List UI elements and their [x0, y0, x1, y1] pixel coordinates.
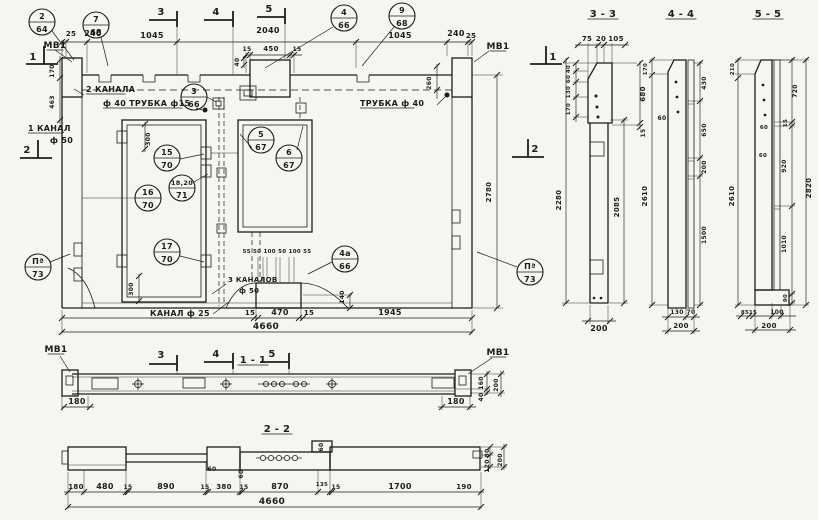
- callout-7-68: 768: [83, 12, 109, 38]
- dim-180-s1-right: 180: [447, 397, 465, 406]
- dim-480-s2: 480: [96, 482, 114, 491]
- title-section-1-1: 1 - 1: [240, 355, 267, 366]
- section-mark-label: 4: [212, 7, 219, 18]
- section-mark-label: 3: [157, 350, 164, 361]
- dim-870-s2: 870: [271, 482, 289, 491]
- dim-180-s1-left: 180: [68, 397, 86, 406]
- dim-170-s4: 170: [643, 63, 649, 75]
- callout-4а-66: 4а66: [332, 246, 358, 272]
- dim-1045-left: 1045: [140, 31, 164, 40]
- dim-920-s5: 920: [781, 159, 788, 172]
- dim-2820-s5: 2820: [805, 178, 813, 199]
- callout-top-number: 7: [93, 15, 99, 24]
- label-3-kanalov: 3 КАНАЛОВ: [228, 276, 278, 284]
- dim-canal-row: 55 50 100 50 100 55: [243, 249, 312, 255]
- dim-60-s2c: 60: [318, 443, 325, 452]
- extension-lines: [62, 40, 809, 509]
- dim-430-s4: 430: [701, 76, 708, 89]
- callout-5-67: 567: [248, 127, 274, 153]
- callout-top-number: 18,20: [171, 179, 193, 187]
- section-mark-label: 2: [23, 145, 30, 156]
- callout-top-number: 9: [399, 6, 405, 15]
- callout-16-70: 1670: [135, 185, 161, 211]
- dim-190-s2: 190: [456, 483, 472, 491]
- sill-bolts-s2: [256, 455, 302, 460]
- dim-40-rot: 40: [234, 58, 241, 67]
- label-mv1-top-right: МВ1: [487, 42, 510, 52]
- dim-15-s3: 15: [640, 129, 647, 138]
- dim-200-s1: 200: [493, 378, 500, 391]
- section-4-4-view: [668, 60, 694, 308]
- section-mark-label: 1: [29, 52, 36, 63]
- dim-75-s3: 75: [582, 35, 592, 43]
- dim-2085-s3: 2085: [613, 197, 621, 218]
- dim-650-s4: 650: [701, 123, 708, 136]
- callout-top-number: 5: [258, 130, 264, 139]
- callout-3-66: 366: [181, 84, 207, 110]
- dim-130-s4: 130: [670, 309, 683, 316]
- section-mark-label: 5: [265, 4, 272, 15]
- dim-120-s2: 120: [484, 459, 491, 472]
- dim-450-sub: 450: [263, 45, 279, 53]
- dim-240-right: 240: [447, 29, 465, 38]
- label-truba-40-15: ф 40 ТРУБКА ф15: [103, 99, 190, 108]
- dim-60-s5b: 60: [759, 153, 767, 159]
- callout-top-number: 4: [341, 8, 347, 17]
- dim-15-sub-l: 15: [243, 46, 252, 53]
- dim-105-s3: 105: [608, 35, 624, 43]
- dim-170-left: 170: [49, 64, 56, 77]
- dim-1045-right: 1045: [388, 31, 412, 40]
- title-section-5-5: 5 - 5: [755, 9, 782, 20]
- callout-Пª-73: Пª73: [517, 259, 543, 285]
- dim-300-bottom: 300: [128, 282, 135, 295]
- callout-bottom-number: 67: [283, 161, 295, 170]
- title-section-2-2: 2 - 2: [264, 424, 291, 435]
- label-f-50-bottom: ф 50: [239, 287, 259, 295]
- dim-890-s2: 890: [157, 482, 175, 491]
- dim-200-s5: 200: [761, 322, 777, 330]
- dim-15-s2d: 15: [332, 484, 341, 491]
- dim-200-s3: 200: [590, 324, 608, 333]
- callout-top-number: Пª: [32, 257, 44, 266]
- bottom-canal-block: [256, 283, 301, 308]
- callout-bottom-number: 70: [161, 255, 173, 264]
- trubka-15-marker: [203, 108, 208, 113]
- callout-2-64: 264: [29, 9, 55, 35]
- dim-1500-s4: 1500: [701, 226, 708, 244]
- label-kanal-25: КАНАЛ ф 25: [150, 309, 210, 318]
- section-5-5-view: [755, 60, 789, 305]
- dim-130-s3: 130: [566, 86, 572, 98]
- section-mark-3: 3: [149, 350, 177, 374]
- callout-bottom-number: 73: [524, 275, 536, 284]
- dim-720-s5: 720: [792, 84, 799, 97]
- dim-60-s2a: 60: [208, 466, 217, 473]
- section-mark-1: 1: [530, 46, 562, 64]
- callout-top-number: 17: [161, 242, 173, 251]
- dim-300-top: 300: [145, 132, 152, 145]
- dim-200-s2: 200: [497, 453, 504, 466]
- callout-bottom-number: 68: [90, 28, 102, 37]
- callout-top-number: 6: [286, 148, 292, 157]
- dim-463-left: 463: [49, 95, 56, 108]
- dim-470: 470: [271, 308, 289, 317]
- callout-bottom-number: 71: [176, 191, 188, 200]
- callout-top-number: 4а: [339, 249, 351, 258]
- callout-18,20-71: 18,2071: [169, 175, 195, 201]
- dim-260: 260: [426, 76, 433, 89]
- label-mv1-s1-right: МВ1: [487, 348, 510, 358]
- callout-17-70: 1770: [154, 239, 180, 265]
- dim-15-s5: 15: [783, 119, 789, 127]
- callout-bottom-number: 67: [255, 143, 267, 152]
- callout-bottom-number: 64: [36, 25, 48, 34]
- callout-bottom-number: 66: [188, 100, 200, 109]
- drawing-sheet: МВ12524010452040154501540104524025МВ1170…: [0, 0, 818, 520]
- dim-680-s3: 680: [639, 86, 647, 102]
- callout-15-70: 1570: [154, 145, 180, 171]
- dim-4660-s2: 4660: [259, 497, 285, 507]
- callout-top-number: 16: [142, 188, 154, 197]
- dim-15-sub-r: 15: [293, 46, 302, 53]
- section-mark-label: 5: [268, 349, 275, 360]
- section-mark-4: 4: [204, 7, 233, 74]
- dim-15-bot-l: 15: [245, 309, 255, 317]
- dim-4660-main: 4660: [253, 322, 279, 332]
- section-mark-3: 3: [149, 7, 177, 74]
- dim-170-s3: 170: [566, 103, 572, 115]
- label-f-50: ф 50: [50, 136, 73, 145]
- dim-135-s2: 135: [316, 482, 328, 488]
- section-mark-label: 3: [157, 7, 164, 18]
- dim-160-s1: 160: [478, 376, 485, 389]
- dim-2280-s3: 2280: [555, 190, 563, 211]
- section-mark-5: 5: [260, 349, 289, 374]
- leader-lines: [50, 27, 517, 374]
- callout-bottom-number: 66: [338, 21, 350, 30]
- callout-9-68: 968: [389, 3, 415, 29]
- dim-40-s3: 40: [566, 65, 572, 73]
- dim-20-s3: 20: [596, 35, 606, 43]
- dim-2610-s5: 2610: [728, 186, 736, 207]
- callout-4-66: 466: [331, 5, 357, 31]
- dim-60-s5a: 60: [760, 125, 768, 131]
- label-mv1-s1-left: МВ1: [45, 345, 68, 355]
- dim-200-s4a: 200: [701, 160, 708, 173]
- callout-6-67: 667: [276, 145, 302, 171]
- dim-60-s3: 60: [566, 75, 572, 83]
- dim-140: 140: [339, 290, 346, 303]
- dim-2780: 2780: [485, 182, 493, 203]
- section-mark-label: 2: [531, 144, 538, 155]
- callout-bottom-number: 66: [339, 262, 351, 271]
- callout-bottom-number: 68: [396, 19, 408, 28]
- callout-bottom-number: 70: [142, 201, 154, 210]
- dim-380-s2: 380: [216, 483, 232, 491]
- trubka-40-marker: [445, 93, 450, 98]
- label-1-kanal: 1 КАНАЛ: [28, 124, 71, 133]
- callout-top-number: 15: [161, 148, 173, 157]
- dim-210-s5: 210: [730, 63, 736, 75]
- callout-Пª-73: Пª73: [25, 254, 51, 280]
- section-1-1-view: [62, 370, 471, 396]
- title-section-3-3: 3 - 3: [590, 9, 617, 20]
- section-mark-2: 2: [512, 139, 544, 157]
- callout-top-number: Пª: [524, 262, 536, 271]
- section-mark-2: 2: [20, 140, 52, 158]
- dim-2610-s4: 2610: [641, 186, 649, 207]
- section-2-2-view: [62, 441, 482, 470]
- section-3-3-view: [588, 63, 612, 303]
- dim-1945: 1945: [378, 308, 402, 317]
- dim-40-s1: 40: [478, 393, 485, 402]
- callout-top-number: 2: [39, 12, 45, 21]
- section-mark-4: 4: [204, 349, 233, 374]
- sill-bolts-s1: [258, 381, 310, 386]
- callout-bottom-number: 73: [32, 270, 44, 279]
- title-section-4-4: 4 - 4: [668, 9, 695, 20]
- dim-200-s4b: 200: [673, 322, 689, 330]
- main-elevation-panel: [62, 58, 472, 308]
- dim-1010-s5: 1010: [781, 235, 788, 253]
- window-opening: [238, 120, 312, 232]
- label-trubka-40: ТРУБКА ф 40: [360, 99, 424, 108]
- dim-90-s5: 90: [783, 294, 789, 302]
- section-mark-label: 1: [549, 52, 556, 63]
- dim-60-s2b: 60: [238, 470, 245, 479]
- panel-working-drawing: МВ12524010452040154501540104524025МВ1170…: [0, 0, 818, 520]
- callout-top-number: 3: [191, 87, 197, 96]
- callout-bottom-number: 70: [161, 161, 173, 170]
- dim-60-s4: 60: [658, 115, 667, 122]
- label-mv1-top-left: МВ1: [44, 41, 67, 51]
- label-2-kanala: 2 КАНАЛА: [86, 85, 136, 94]
- dim-2040: 2040: [256, 26, 280, 35]
- dim-1700-s2: 1700: [388, 482, 412, 491]
- dim-25-left: 25: [66, 30, 76, 38]
- section-mark-label: 4: [212, 349, 219, 360]
